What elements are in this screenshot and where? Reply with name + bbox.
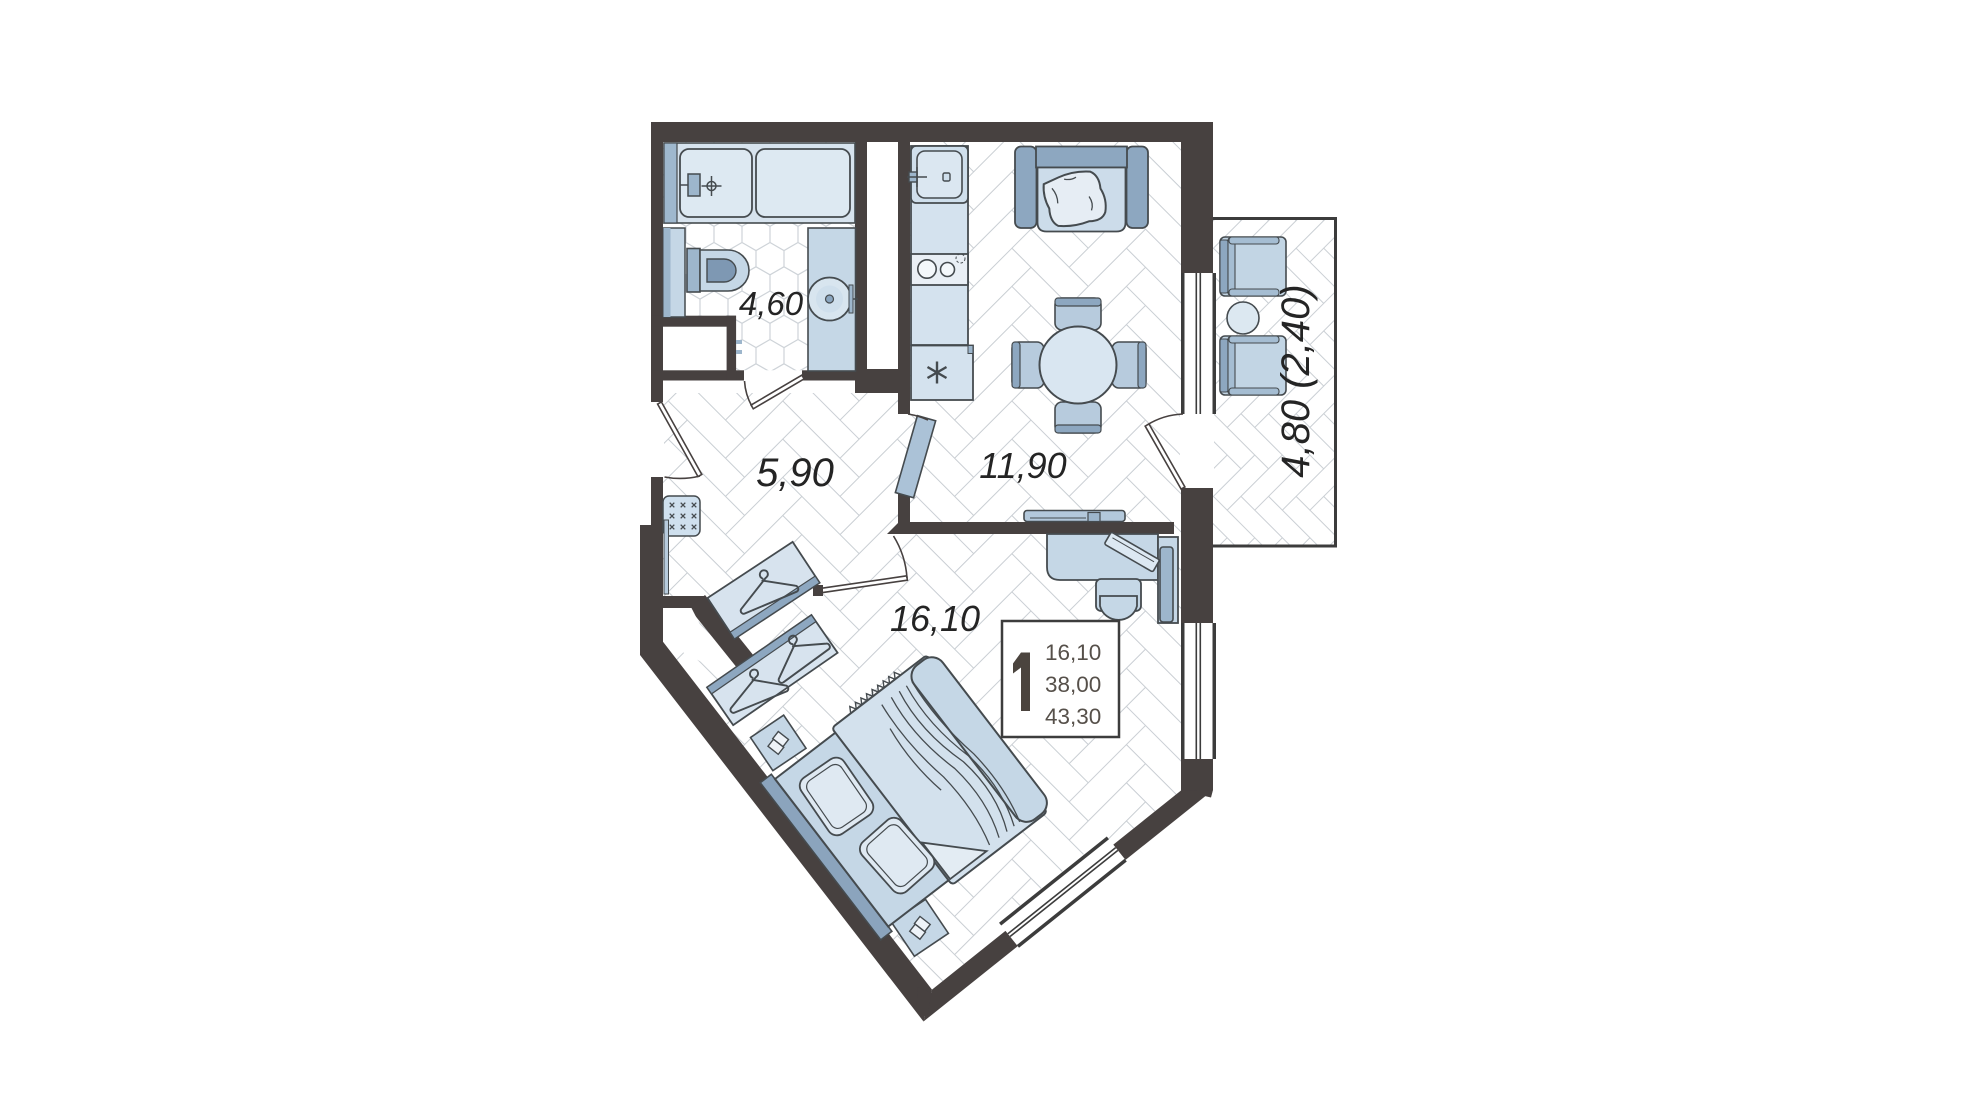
svg-text:38,00: 38,00 bbox=[1045, 672, 1101, 697]
svg-text:43,30: 43,30 bbox=[1045, 704, 1101, 729]
svg-text:4,60: 4,60 bbox=[739, 285, 804, 322]
svg-text:16,10: 16,10 bbox=[1045, 640, 1101, 665]
svg-text:5,90: 5,90 bbox=[756, 451, 834, 495]
svg-text:11,90: 11,90 bbox=[979, 445, 1066, 486]
svg-text:16,10: 16,10 bbox=[890, 598, 980, 639]
svg-text:4,80 (2,40): 4,80 (2,40) bbox=[1274, 284, 1318, 477]
